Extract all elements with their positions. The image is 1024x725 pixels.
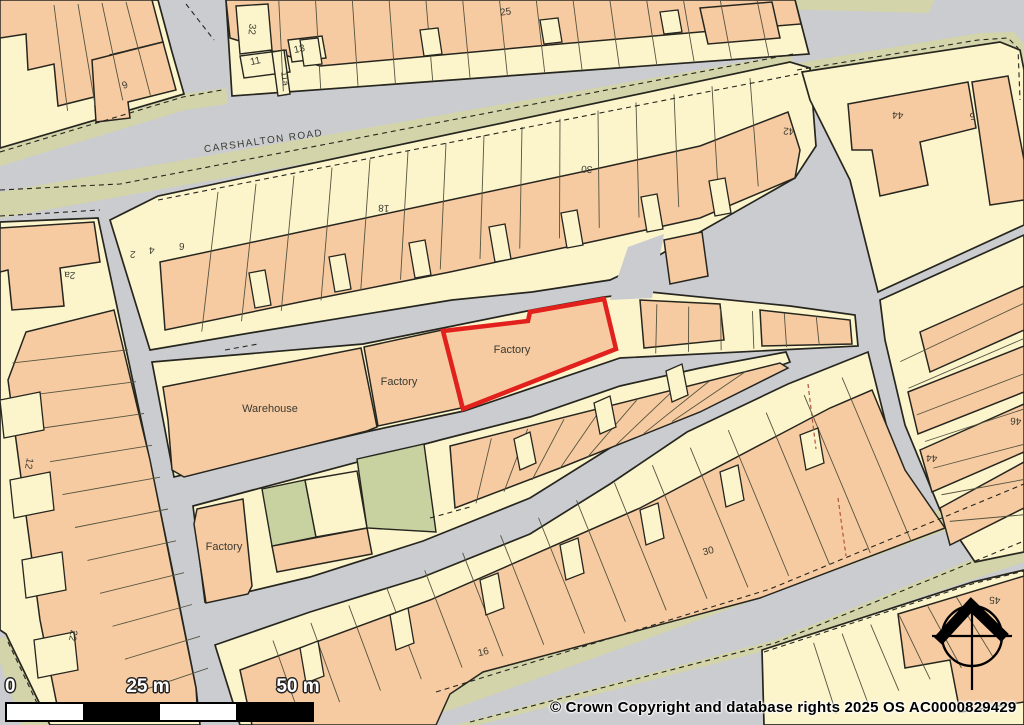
map-label: Factory <box>206 541 243 553</box>
building-notch <box>660 10 682 34</box>
plot-label: Factory <box>494 344 531 356</box>
scale-bar-strip <box>5 702 314 722</box>
scale-segment <box>236 704 312 720</box>
building <box>700 2 780 44</box>
map-label: 44 <box>891 109 903 121</box>
building-notch <box>10 472 54 518</box>
building <box>640 300 724 348</box>
map-label: Warehouse <box>242 403 298 415</box>
map-label: 11a <box>279 71 291 86</box>
map-label: 45 <box>988 594 1000 606</box>
copyright-text: © Crown Copyright and database rights 20… <box>550 699 1024 716</box>
map-label: 25 <box>499 6 512 19</box>
scale-label-zero: 0 <box>5 676 16 698</box>
building-notch <box>22 552 66 598</box>
parcel-line <box>560 119 561 239</box>
yard-plot <box>305 471 367 537</box>
map-label: 18 <box>377 202 389 214</box>
map-label: 30 <box>580 163 592 175</box>
scale-segment <box>7 704 83 720</box>
map-label: 2a <box>63 269 75 281</box>
garden-plot <box>357 444 436 532</box>
map-label: 46 <box>1009 415 1021 427</box>
map-label: 44 <box>925 452 937 464</box>
building-notch <box>0 392 44 438</box>
building-notch <box>540 18 562 44</box>
scale-bar: 0 25 m 50 m <box>0 676 340 722</box>
building <box>664 232 708 284</box>
scale-label-mid: 25 m <box>108 676 188 698</box>
parcel-line <box>721 309 722 350</box>
map-canvas[interactable]: CARSHALTON ROADFactoryFactoryWarehouseFa… <box>0 0 1024 725</box>
scale-segment <box>160 704 236 720</box>
building-notch <box>420 28 442 56</box>
scale-segment <box>83 704 159 720</box>
map-label: 32 <box>245 23 257 35</box>
scale-label-end: 50 m <box>258 676 338 698</box>
map-label: 42 <box>782 125 794 137</box>
os-map: CARSHALTON ROADFactoryFactoryWarehouseFa… <box>0 0 1024 725</box>
map-label: Factory <box>381 376 418 388</box>
